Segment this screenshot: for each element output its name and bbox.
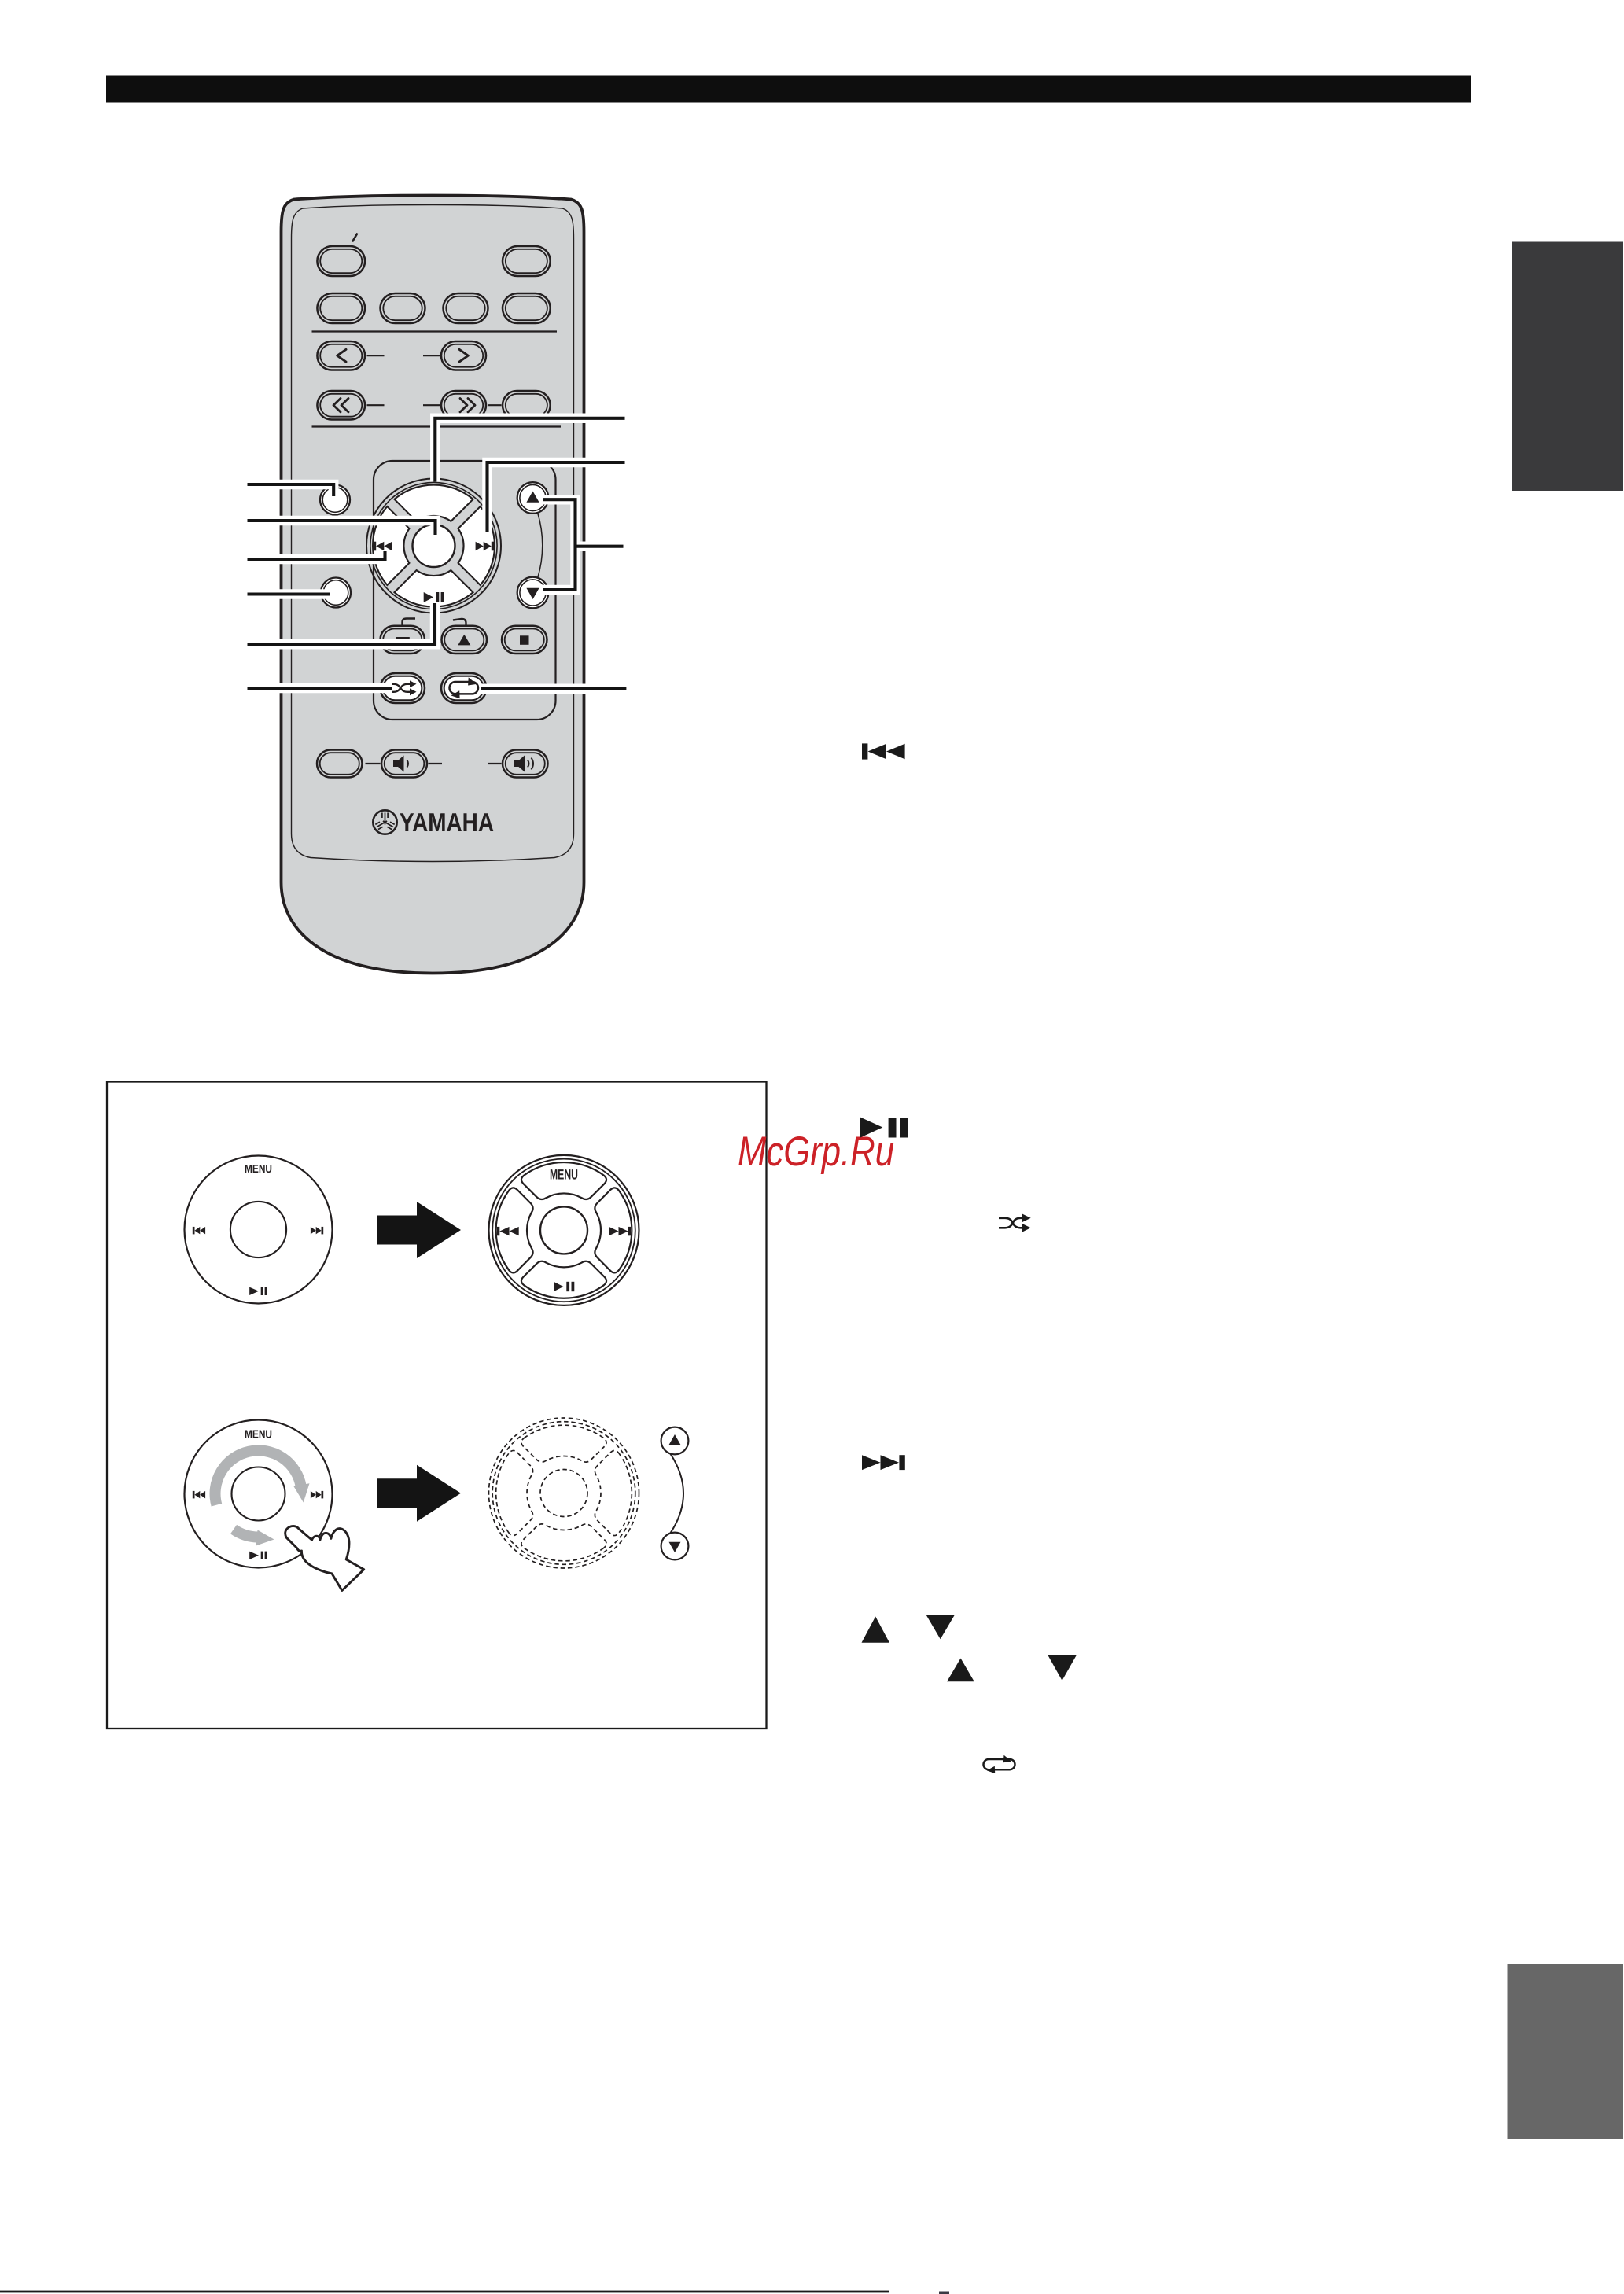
svg-text:YAMAHA: YAMAHA xyxy=(400,808,494,837)
svg-text:McGrp.Ru: McGrp.Ru xyxy=(738,1129,894,1175)
svg-text:MENU: MENU xyxy=(550,1167,578,1183)
svg-text:MENU: MENU xyxy=(245,1428,272,1441)
svg-text:MENU: MENU xyxy=(245,1163,272,1176)
